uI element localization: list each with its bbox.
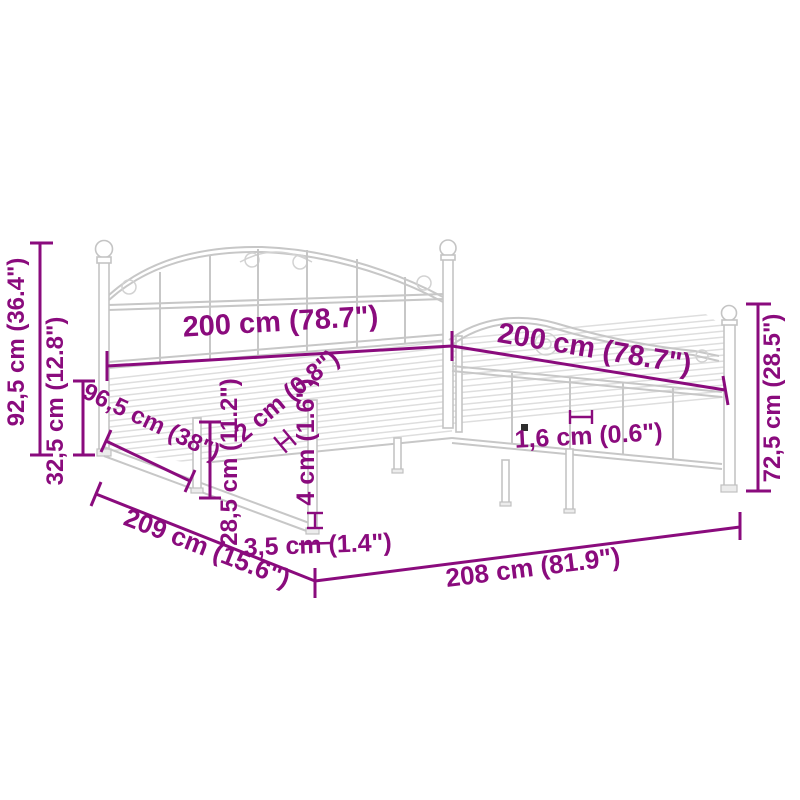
dim-slat-bar: 1,6 cm (0.6") [514,410,663,454]
dim-headboard-width: 200 cm (78.7") [107,300,452,381]
dim-leg-width: 3,5 cm (1.4") [243,528,392,561]
dim-frame-length-label: 208 cm (81.9") [444,541,622,593]
post-foot [721,485,737,492]
support-leg [394,438,401,471]
footboard-left-post [456,336,462,432]
dim-footboard-height-label: 72,5 cm (28.5") [759,314,786,483]
dim-slat-bar-label: 1,6 cm (0.6") [514,418,663,454]
ball-finial [440,240,456,256]
support-leg [566,449,573,511]
dim-leg-width-label: 3,5 cm (1.4") [243,528,392,561]
dim-footboard-height: 72,5 cm (28.5") [746,304,786,491]
ball-finial [722,306,737,321]
bed-frame-illustration [96,240,738,534]
headboard-left-post [96,241,113,457]
dim-foot-height-label: 4 cm (1.6") [292,378,320,505]
dim-foot-height: 4 cm (1.6") [292,378,323,528]
dim-headboard-height-label: 92,5 cm (36.4") [3,258,30,427]
dim-side-rail-length-label: 200 cm (78.7") [495,317,694,381]
dim-clearance-label: 28,5 cm (11.2") [216,378,243,545]
dim-slat-thickness: 2 cm (0.8") [229,344,344,452]
post-foot [97,449,111,456]
dim-base-height-label: 32,5 cm (12.8") [42,317,69,486]
support-leg [502,460,509,504]
footboard-right-post [721,306,737,493]
ball-finial [96,241,113,258]
product-dimension-diagram: 92,5 cm (36.4") 32,5 cm (12.8") 96,5 cm … [0,0,800,800]
